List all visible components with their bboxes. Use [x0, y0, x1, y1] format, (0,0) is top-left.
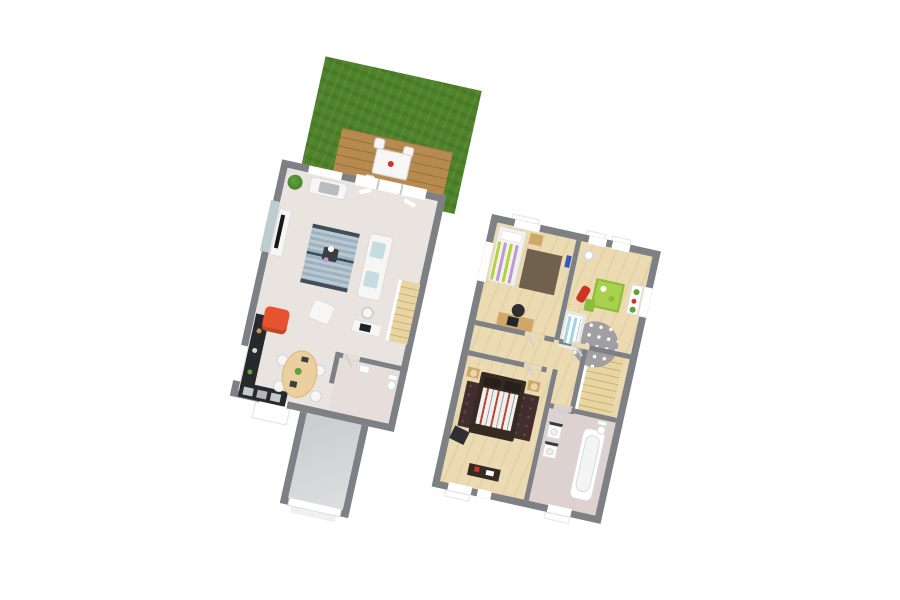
floorplan-canvas — [0, 0, 900, 600]
red-armchair — [261, 305, 291, 335]
first-floor-plan — [429, 214, 668, 538]
table-item — [289, 380, 297, 387]
window — [477, 489, 492, 500]
decor-item — [474, 466, 480, 472]
play-mat — [590, 278, 625, 313]
